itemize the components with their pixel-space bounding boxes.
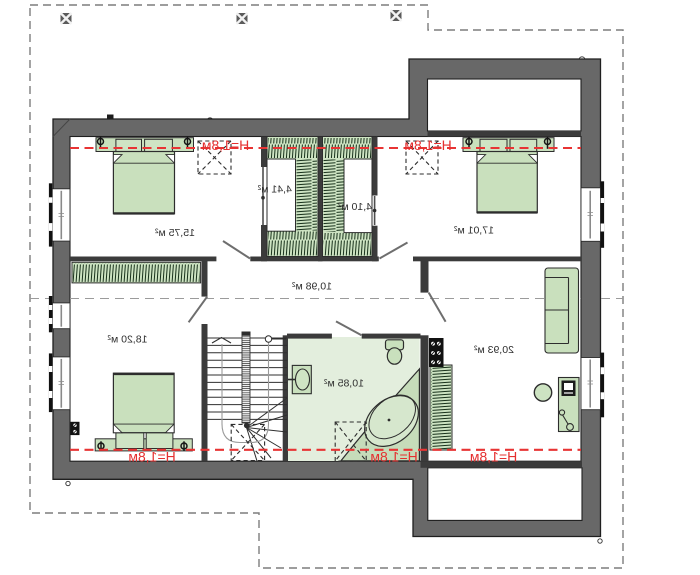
svg-text:4,10 м²: 4,10 м² [337, 201, 372, 213]
svg-text:18,20 м²: 18,20 м² [107, 334, 147, 346]
svg-text:H=1,8м: H=1,8м [202, 137, 249, 153]
svg-text:20,93 м²: 20,93 м² [474, 344, 514, 356]
svg-text:10,98 м²: 10,98 м² [292, 281, 332, 293]
svg-text:H=1,8м: H=1,8м [470, 449, 517, 465]
svg-text:17,01 м²: 17,01 м² [454, 225, 494, 237]
svg-text:H=1,8м: H=1,8м [404, 137, 451, 153]
svg-text:H=1,8м: H=1,8м [370, 449, 417, 465]
svg-text:4,41 м²: 4,41 м² [257, 184, 292, 196]
svg-text:10,85 м²: 10,85 м² [324, 378, 364, 390]
svg-text:H=1,8м: H=1,8м [128, 449, 175, 465]
svg-text:15,75 м²: 15,75 м² [155, 227, 195, 239]
